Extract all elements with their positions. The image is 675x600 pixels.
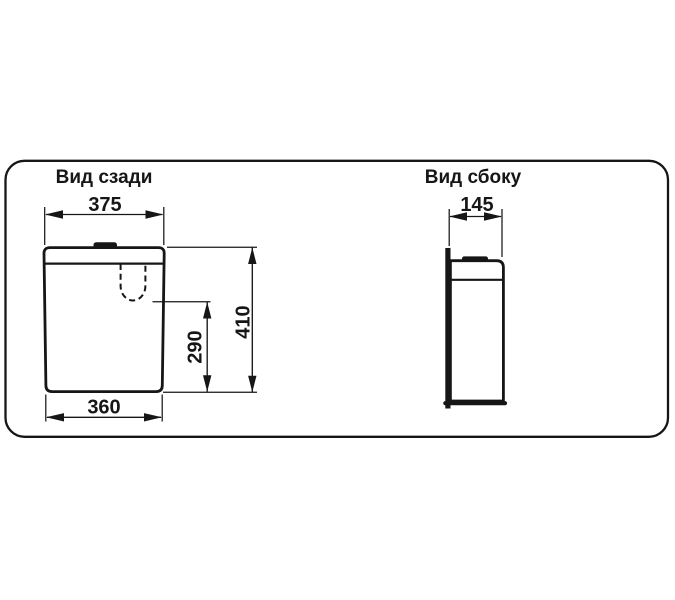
rear-top-width-dimension: 375	[45, 194, 164, 245]
flush-button	[94, 242, 118, 248]
arrowhead-down-icon	[203, 375, 211, 392]
arrowhead-left-icon	[449, 212, 467, 220]
rear-view: Вид сзади 375 290	[44, 167, 257, 422]
diagram-canvas: Вид сзади 375 290	[0, 0, 675, 600]
rear-bottom-width-dimension: 360	[46, 395, 162, 422]
technical-drawing: Вид сзади 375 290	[0, 0, 675, 600]
side-depth-dimension: 145	[449, 194, 502, 257]
rear-top-width-value: 375	[88, 194, 121, 216]
arrowhead-left-icon	[45, 210, 63, 218]
arrowhead-right-icon	[144, 413, 162, 421]
arrowhead-up-icon	[248, 247, 256, 264]
arrowhead-left-icon	[46, 413, 64, 421]
rear-bottom-width-value: 360	[87, 397, 120, 419]
rear-view-title: Вид сзади	[56, 167, 153, 188]
arrowhead-down-icon	[248, 376, 256, 393]
rear-inlet-height-dimension: 290	[185, 302, 212, 392]
side-view: Вид сбоку 145	[425, 167, 522, 409]
rear-inlet-height-value: 290	[185, 330, 207, 363]
rear-wall-profile	[445, 248, 450, 409]
side-view-title: Вид сбоку	[425, 167, 522, 188]
cistern-side-outline	[450, 261, 503, 401]
rear-total-height-value: 410	[233, 305, 255, 338]
arrowhead-up-icon	[203, 302, 211, 319]
arrowhead-right-icon	[146, 210, 164, 218]
rear-total-height-dimension: 410	[163, 247, 257, 392]
flush-button	[462, 256, 488, 261]
